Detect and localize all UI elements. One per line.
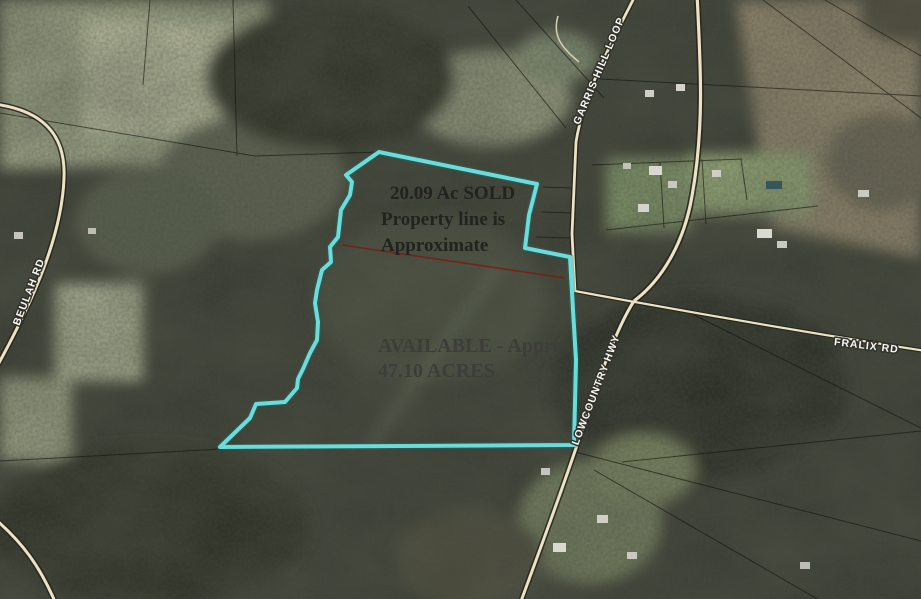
pool [766, 181, 782, 189]
texture-highlights [0, 0, 921, 599]
satellite-map-canvas: GARRIS HILL LOOP BEULAH RD FRALIX RD LOW… [0, 0, 921, 599]
available-line-2: 47.10 ACRES [378, 360, 495, 382]
sold-line-2: Property line is [381, 209, 505, 230]
sold-line-1: 20.09 Ac SOLD [390, 183, 515, 204]
available-line-1: AVAILABLE - Approx [378, 335, 573, 357]
aerial-property-map: GARRIS HILL LOOP BEULAH RD FRALIX RD LOW… [0, 0, 921, 599]
sold-line-3: Approximate [381, 235, 488, 256]
